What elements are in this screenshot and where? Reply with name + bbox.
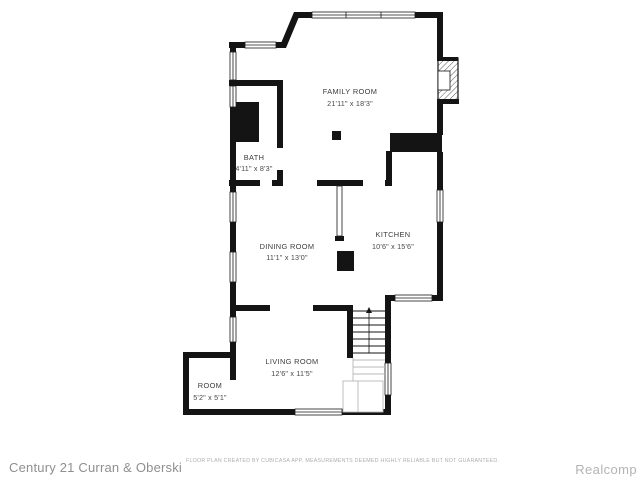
svg-text:11'1" x 13'0": 11'1" x 13'0" [266, 253, 308, 262]
room-label-dining-room: DINING ROOM 11'1" x 13'0" [260, 242, 315, 262]
floor-plan: FAMILY ROOM 21'11" x 18'3" BATH 4'11" x … [0, 0, 640, 480]
half-wall-divider [337, 186, 342, 236]
svg-text:FAMILY ROOM: FAMILY ROOM [323, 87, 378, 96]
window-bottom [295, 409, 342, 415]
support-column [332, 131, 341, 140]
fireplace [437, 57, 459, 104]
agency-credit: Century 21 Curran & Oberski [9, 460, 182, 475]
stairs-below-landing [343, 358, 385, 412]
stair-direction-arrow [366, 307, 372, 313]
windows [230, 12, 443, 415]
window-kitchen-right [437, 190, 443, 222]
chimney [233, 102, 259, 142]
window-kitchen-bottom [395, 295, 432, 301]
firebox [438, 71, 450, 90]
svg-text:BATH: BATH [244, 153, 265, 162]
svg-text:KITCHEN: KITCHEN [376, 230, 411, 239]
room-label-family-room: FAMILY ROOM 21'11" x 18'3" [323, 87, 378, 108]
room-label-room: ROOM 5'2" x 5'1" [193, 381, 227, 402]
svg-text:4'11" x 8'3": 4'11" x 8'3" [235, 164, 273, 173]
window-left-2 [230, 86, 236, 107]
window-left-1 [230, 52, 236, 80]
svg-text:LIVING ROOM: LIVING ROOM [265, 357, 318, 366]
window-nook-top [245, 42, 276, 48]
realcomp-logo: Realcomp [575, 462, 637, 477]
room-label-bath: BATH 4'11" x 8'3" [235, 153, 273, 173]
svg-text:5'2" x 5'1": 5'2" x 5'1" [193, 393, 227, 402]
window-band-top [312, 12, 415, 18]
room-label-living-room: LIVING ROOM 12'6" x 11'5" [265, 357, 318, 378]
svg-text:10'6" x 15'6": 10'6" x 15'6" [372, 242, 414, 251]
window-left-4 [230, 252, 236, 282]
svg-text:21'11" x 18'3": 21'11" x 18'3" [327, 99, 373, 108]
disclaimer-text: FLOOR PLAN CREATED BY CUBICASA APP. MEAS… [186, 458, 499, 464]
kitchen-chimney [337, 251, 354, 271]
svg-text:DINING ROOM: DINING ROOM [260, 242, 315, 251]
window-right-lower [385, 363, 391, 395]
window-left-5 [230, 317, 236, 342]
svg-text:12'6" x 11'5": 12'6" x 11'5" [271, 369, 313, 378]
bay-corner-wall [279, 12, 301, 48]
window-left-3 [230, 192, 236, 222]
svg-text:ROOM: ROOM [198, 381, 222, 390]
walls [183, 12, 443, 415]
room-label-kitchen: KITCHEN 10'6" x 15'6" [372, 230, 414, 251]
